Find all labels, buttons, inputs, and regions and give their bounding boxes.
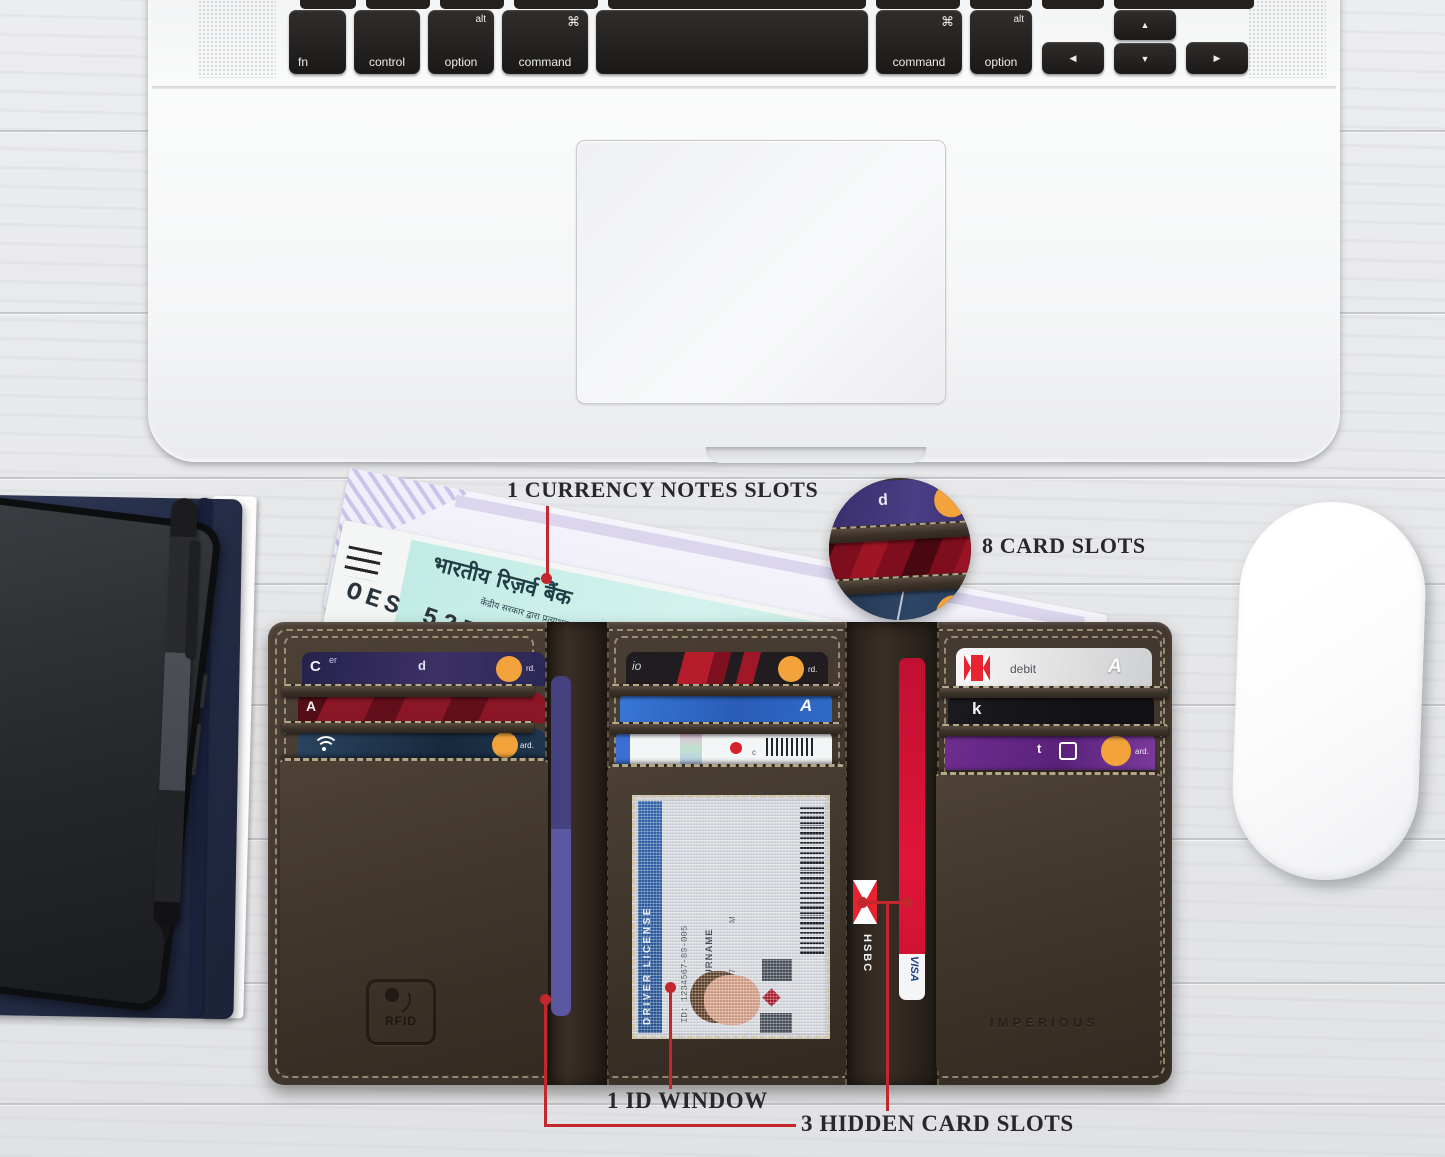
card-slot-center-2-blue-visa: A bbox=[620, 692, 832, 724]
keyboard-upper-row-stub bbox=[514, 0, 598, 9]
annotation-id-window-label: 1 ID WINDOW bbox=[607, 1088, 768, 1114]
callout-line-hidden-bridge bbox=[862, 901, 908, 904]
rfid-stamp: RFID bbox=[366, 979, 436, 1045]
card-text-fragment: c bbox=[752, 748, 756, 757]
card-blue-edge bbox=[616, 730, 630, 766]
arrow-down-icon: ▼ bbox=[1114, 43, 1176, 74]
mastercard-circle-icon bbox=[1101, 736, 1131, 766]
keyboard-key-command-right[interactable]: ⌘ command bbox=[876, 10, 962, 74]
keyboard-upper-row-stub bbox=[1114, 0, 1254, 9]
card-slot-edge bbox=[282, 684, 534, 697]
keyboard-upper-row-stub bbox=[876, 0, 960, 9]
left-panel-pocket: RFID bbox=[280, 758, 548, 1075]
trackpad[interactable] bbox=[576, 140, 946, 404]
card-text-fragment: d bbox=[418, 658, 426, 673]
card-text-fragment: k bbox=[972, 699, 981, 719]
keyboard-key-control[interactable]: control bbox=[354, 10, 420, 74]
keyboard-upper-row-stub bbox=[366, 0, 430, 9]
arrow-left-icon: ◀ bbox=[1042, 42, 1104, 74]
card-slot-left-1-navy: C er d rd. bbox=[302, 652, 545, 686]
mastercard-circle-icon bbox=[933, 482, 969, 518]
key-label: control bbox=[354, 55, 420, 69]
card-text-fragment: A bbox=[800, 696, 812, 716]
card-slot-right-1-white-hsbc-debit: debit A bbox=[956, 648, 1152, 688]
card-slot-edge bbox=[610, 722, 842, 734]
mastercard-circle-icon bbox=[496, 656, 522, 682]
card-slot-left-2-red: A bbox=[298, 693, 545, 723]
visa-white-patch: VISA bbox=[899, 954, 925, 1000]
keyboard-key-arrow-right[interactable]: ▶ bbox=[1186, 42, 1248, 74]
arrow-right-icon: ▶ bbox=[1186, 42, 1248, 74]
callout-line-hidden-horizontal bbox=[546, 1124, 796, 1127]
key-label: fn bbox=[289, 55, 355, 69]
keyboard-key-arrow-down[interactable]: ▼ bbox=[1114, 43, 1176, 74]
card-slot-edge bbox=[940, 686, 1168, 698]
card-red-dot-logo bbox=[730, 742, 742, 754]
key-label: command bbox=[502, 55, 588, 69]
rfid-wave-arc bbox=[377, 980, 415, 1018]
id-window: DRIVER LICENSE ID: 1234567-89-005 NAME S… bbox=[632, 795, 830, 1039]
card-slot-right-3-purple: t ard. bbox=[945, 732, 1155, 770]
id-window-mesh-overlay bbox=[632, 795, 830, 1039]
card-text-fragment: io bbox=[632, 659, 641, 673]
barcode bbox=[766, 738, 816, 756]
command-icon: ⌘ bbox=[941, 14, 954, 30]
hsbc-logo-icon bbox=[964, 655, 990, 681]
keyboard-upper-row-stub bbox=[300, 0, 356, 9]
card-square-icon bbox=[1059, 742, 1077, 760]
key-label: command bbox=[876, 55, 962, 69]
arrow-up-icon: ▲ bbox=[1114, 10, 1176, 40]
center-panel-pocket: DRIVER LICENSE ID: 1234567-89-005 NAME S… bbox=[608, 764, 846, 1075]
card-text-fragment: debit bbox=[1010, 662, 1036, 676]
wallet-fold-gap-left bbox=[545, 622, 609, 1085]
keyboard-upper-row-stub bbox=[970, 0, 1032, 9]
rfid-stamp-label: RFID bbox=[369, 1014, 433, 1028]
keyboard-key-arrow-up[interactable]: ▲ bbox=[1114, 10, 1176, 40]
callout-line-hidden-right-vertical bbox=[886, 903, 889, 1111]
key-label: option bbox=[428, 55, 494, 69]
card-text-fragment: C bbox=[310, 658, 321, 675]
card-text-fragment: rd. bbox=[526, 664, 535, 673]
callout-line-currency bbox=[546, 506, 549, 578]
keyboard-upper-row-stub bbox=[608, 0, 866, 9]
callout-line-id-window bbox=[669, 987, 672, 1089]
brand-stamp: IMPERIOUS bbox=[990, 1015, 1099, 1030]
trifold-wallet: HSBC VISA C er d rd. A bbox=[268, 622, 1172, 1085]
command-icon: ⌘ bbox=[567, 14, 580, 30]
mastercard-circle-icon bbox=[778, 656, 804, 682]
keyboard-key-command-left[interactable]: ⌘ command bbox=[502, 10, 588, 74]
mastercard-circle-icon bbox=[935, 594, 971, 620]
laptop-speaker-grille-right bbox=[1248, 0, 1326, 78]
card-slot-center-1-black-red: io rd. bbox=[626, 652, 828, 686]
keyboard-upper-row-stub bbox=[1042, 0, 1104, 9]
keyboard-key-option-left[interactable]: alt option bbox=[428, 10, 494, 74]
card-text-fragment: d bbox=[878, 492, 889, 510]
pen-tip bbox=[159, 926, 172, 945]
magic-mouse bbox=[1229, 499, 1428, 883]
right-panel-pocket: IMPERIOUS bbox=[936, 772, 1160, 1075]
key-label: option bbox=[970, 55, 1032, 69]
wallet-fold-gap-right: HSBC VISA bbox=[845, 622, 939, 1085]
zoom-inset-circle: o d bbox=[829, 478, 971, 620]
note-bleed-marks bbox=[343, 546, 382, 582]
hidden-card-purple-polka bbox=[551, 676, 571, 1016]
hidden-card-hsbc: HSBC bbox=[851, 650, 879, 1000]
hidden-card-hsbc-label: HSBC bbox=[861, 934, 873, 973]
card-text-fragment: A bbox=[1108, 656, 1122, 678]
card-slot-left-3-blue-contactless: ard. bbox=[298, 729, 545, 761]
card-slot-edge bbox=[610, 684, 842, 696]
callout-line-hidden-left-vertical bbox=[544, 999, 547, 1127]
card-text-fragment: er bbox=[329, 655, 337, 665]
product-photo-scene: fn control alt option ⌘ command ⌘ comman… bbox=[0, 0, 1445, 1157]
contactless-wifi-icon bbox=[312, 733, 338, 759]
card-text-fragment: t bbox=[1037, 741, 1041, 756]
annotation-currency-notes-label: 1 CURRENCY NOTES SLOTS bbox=[507, 477, 818, 503]
card-text-fragment: ard. bbox=[520, 741, 534, 750]
annotation-hidden-card-slots-label: 3 HIDDEN CARD SLOTS bbox=[801, 1111, 1074, 1137]
keyboard-key-spacebar[interactable] bbox=[596, 10, 868, 74]
keyboard-upper-row-stub bbox=[440, 0, 504, 9]
card-text-fragment: A bbox=[306, 698, 316, 714]
alt-glyph: alt bbox=[1013, 14, 1024, 25]
keyboard-deck-groove bbox=[152, 86, 1336, 89]
card-text-fragment: rd. bbox=[808, 665, 817, 674]
keyboard-key-arrow-left[interactable]: ◀ bbox=[1042, 42, 1104, 74]
card-slot-center-3-white: c bbox=[616, 730, 832, 766]
card-slot-edge bbox=[282, 721, 534, 733]
callout-dot-currency bbox=[541, 573, 552, 584]
keyboard-key-fn[interactable]: fn bbox=[289, 10, 346, 74]
hologram-strip bbox=[680, 730, 702, 766]
hidden-card-visa-red: VISA bbox=[899, 658, 925, 1000]
alt-glyph: alt bbox=[475, 14, 486, 25]
keyboard-key-option-right[interactable]: alt option bbox=[970, 10, 1032, 74]
card-slot-edge bbox=[940, 724, 1168, 736]
card-text-fragment: ard. bbox=[1135, 747, 1149, 756]
laptop-front-notch bbox=[706, 447, 926, 463]
contactless-wifi-icon bbox=[829, 603, 849, 620]
laptop-speaker-grille-left bbox=[198, 0, 276, 78]
annotation-card-slots-label: 8 CARD SLOTS bbox=[982, 533, 1146, 559]
card-slot-right-2-black: k bbox=[948, 694, 1154, 726]
hidden-card-visa-label: VISA bbox=[908, 956, 920, 982]
mastercard-circle-icon bbox=[492, 732, 518, 758]
